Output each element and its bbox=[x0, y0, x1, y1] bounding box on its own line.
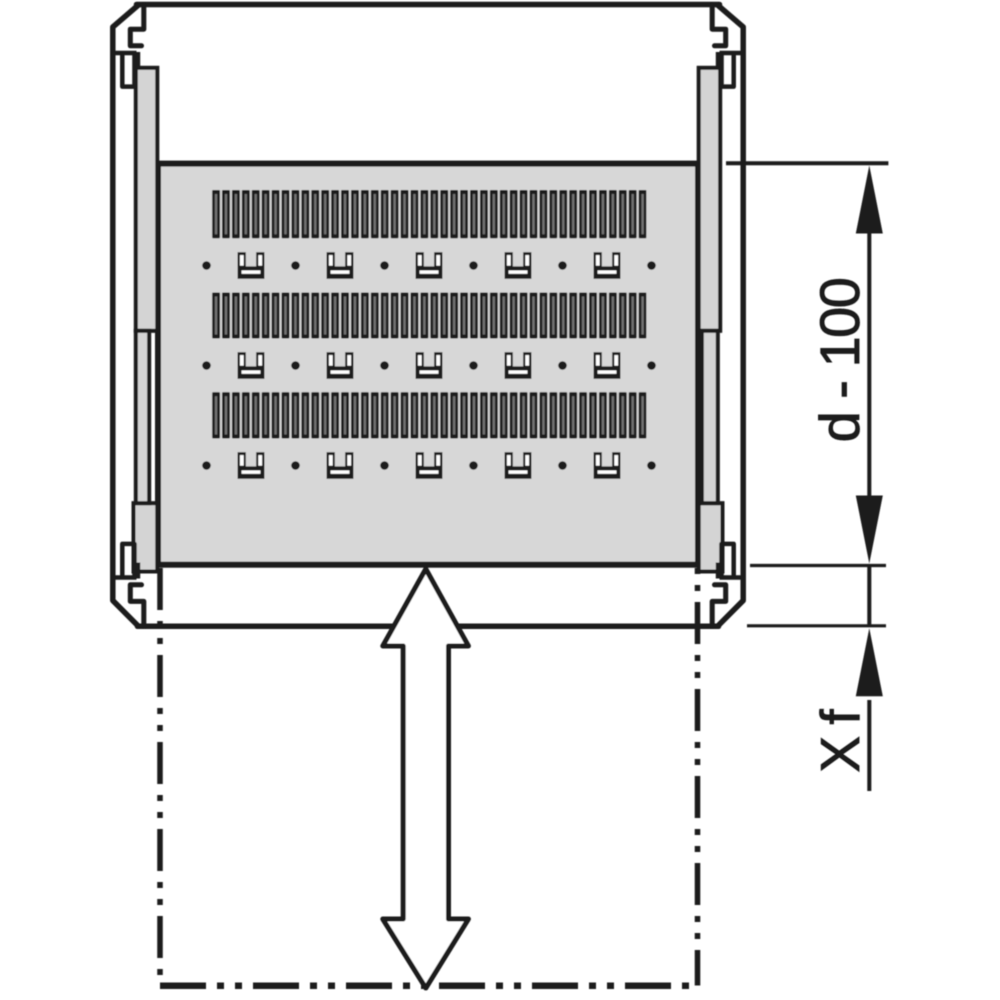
svg-text:d - 100: d - 100 bbox=[808, 279, 871, 443]
svg-text:X f: X f bbox=[809, 709, 871, 773]
